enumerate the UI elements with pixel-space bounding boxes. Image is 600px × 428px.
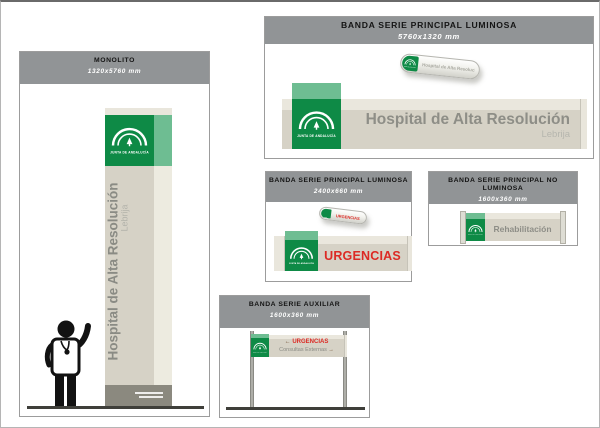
- junta-de-andalucia-logo-icon: JUNTA DE ANDALUCÍA: [403, 56, 418, 70]
- panel-title: MONOLITO: [20, 57, 209, 65]
- svg-text:JUNTA DE ANDALUCÍA: JUNTA DE ANDALUCÍA: [322, 220, 329, 222]
- monolith-side-face: [154, 166, 172, 385]
- junta-de-andalucia-logo-icon: JUNTA DE ANDALUCÍA: [467, 220, 484, 240]
- monolith-logo-block: JUNTA DE ANDALUCÍA: [105, 115, 154, 166]
- banda-sign: JUNTA DE ANDALUCÍA Hospital de Alta Reso…: [282, 99, 587, 149]
- left-arrow-icon: ←: [285, 339, 291, 345]
- panel-title: BANDA SERIE PRINCIPAL NO LUMINOSA: [429, 177, 577, 193]
- svg-text:JUNTA DE ANDALUCÍA: JUNTA DE ANDALUCÍA: [110, 149, 149, 154]
- right-arrow-icon: →: [328, 347, 334, 353]
- sign-right-endcap: [344, 335, 347, 357]
- logo-block: JUNTA DE ANDALUCÍA: [292, 99, 341, 149]
- banda-sign: JUNTA DE ANDALUCÍA Rehabilitación: [460, 211, 566, 244]
- sign-right-endcap: [580, 99, 587, 149]
- panel-dimensions: 1600x360 mm: [429, 196, 577, 203]
- sign-text-block: Hospital de Alta Resolución Lebrija: [342, 111, 570, 140]
- panel-header: BANDA SERIE AUXILIAR 1600x360 mm: [220, 296, 369, 328]
- sign-band-top-face: [318, 236, 407, 244]
- svg-text:JUNTA DE ANDALUCÍA: JUNTA DE ANDALUCÍA: [404, 65, 416, 69]
- svg-text:JUNTA DE ANDALUCÍA: JUNTA DE ANDALUCÍA: [289, 262, 314, 265]
- panel-dimensions: 1600x360 mm: [220, 312, 369, 319]
- banda-sign: JUNTA DE ANDALUCÍA URGENCIAS: [274, 231, 412, 271]
- junta-de-andalucia-logo-icon: JUNTA DE ANDALUCÍA: [252, 339, 268, 356]
- logo-block-top-face: [292, 83, 341, 99]
- svg-text:JUNTA DE ANDALUCÍA: JUNTA DE ANDALUCÍA: [468, 233, 483, 236]
- panel-header: BANDA SERIE PRINCIPAL NO LUMINOSA 1600x3…: [429, 172, 577, 204]
- sign-left-endcap: [274, 236, 285, 271]
- panel-dimensions: 5760x1320 mm: [265, 32, 593, 41]
- ground-line: [226, 407, 365, 410]
- monolith-base-band: [105, 385, 172, 406]
- monolith-sign: JUNTA DE ANDALUCÍA Hospital de Alta Reso…: [105, 108, 172, 406]
- junta-de-andalucia-logo-icon: JUNTA DE ANDALUCÍA: [295, 102, 338, 146]
- fine-print-line: [139, 396, 163, 398]
- person-pictogram-icon: [42, 318, 97, 406]
- fine-print-line: [135, 392, 163, 394]
- sign-3d-miniature: JUNTA DE ANDALUCÍA Hospital de Alta Reso…: [399, 53, 481, 80]
- city-name: Lebrija: [342, 129, 570, 140]
- mini-logo-block: JUNTA DE ANDALUCÍA: [401, 55, 418, 72]
- panel-banda-principal-grande: BANDA SERIE PRINCIPAL LUMINOSA 5760x1320…: [264, 16, 594, 159]
- urgencias-label: URGENCIAS: [318, 249, 407, 263]
- rehabilitacion-label: Rehabilitación: [485, 224, 560, 234]
- panel-header: BANDA SERIE PRINCIPAL LUMINOSA 2400x660 …: [266, 172, 411, 202]
- signage-spec-sheet: MONOLITO 1320x5760 mm JUNTA DE ANDALUCÍA…: [0, 0, 600, 428]
- direction-line-consultas: Consultas Externas →: [269, 347, 344, 353]
- hospital-name: Hospital de Alta Resolución: [342, 111, 570, 128]
- logo-block: JUNTA DE ANDALUCÍA: [285, 240, 318, 271]
- panel-dimensions: 2400x660 mm: [266, 188, 411, 195]
- panel-title: BANDA SERIE AUXILIAR: [220, 301, 369, 309]
- mini-sign-label: Hospital de Alta Resolución: [422, 62, 475, 73]
- monolith-city-name: Lebrija: [120, 171, 130, 381]
- junta-de-andalucia-logo-icon: JUNTA DE ANDALUCÍA: [108, 118, 151, 163]
- urgencias-label: URGENCIAS: [292, 339, 328, 345]
- ground-line: [27, 406, 204, 409]
- panel-monolito-header: MONOLITO 1320x5760 mm: [20, 52, 209, 84]
- banda-sign: JUNTA DE ANDALUCÍA ← URGENCIAS Consultas…: [249, 334, 347, 357]
- panel-title: BANDA SERIE PRINCIPAL LUMINOSA: [266, 177, 411, 185]
- junta-de-andalucia-logo-icon: JUNTA DE ANDALUCÍA: [322, 209, 331, 217]
- panel-banda-no-luminosa: BANDA SERIE PRINCIPAL NO LUMINOSA 1600x3…: [428, 171, 578, 246]
- monolith-top-cap: [105, 108, 172, 115]
- monolith-vertical-text: Hospital de Alta Resolución Lebrija: [106, 171, 155, 381]
- panel-banda-auxiliar: BANDA SERIE AUXILIAR 1600x360 mm JUNTA D…: [219, 295, 370, 418]
- sign-right-endcap: [560, 211, 566, 244]
- panel-banda-urgencias: BANDA SERIE PRINCIPAL LUMINOSA 2400x660 …: [265, 171, 412, 282]
- svg-text:JUNTA DE ANDALUCÍA: JUNTA DE ANDALUCÍA: [297, 133, 336, 138]
- panel-monolito: MONOLITO 1320x5760 mm JUNTA DE ANDALUCÍA…: [19, 51, 210, 417]
- logo-block: JUNTA DE ANDALUCÍA: [466, 219, 485, 241]
- panel-dimensions: 1320x5760 mm: [20, 68, 209, 75]
- panel-header: BANDA SERIE PRINCIPAL LUMINOSA 5760x1320…: [265, 17, 593, 44]
- mini-logo-block: JUNTA DE ANDALUCÍA: [321, 208, 332, 218]
- monolith-hospital-name: Hospital de Alta Resolución: [106, 171, 121, 381]
- logo-block: JUNTA DE ANDALUCÍA: [251, 338, 269, 357]
- junta-de-andalucia-logo-icon: JUNTA DE ANDALUCÍA: [287, 242, 316, 269]
- sign-right-endcap: [407, 236, 412, 271]
- logo-block-top-face: [285, 231, 318, 240]
- sign-3d-miniature: JUNTA DE ANDALUCÍA URGENCIAS: [318, 206, 367, 225]
- monolith-logo-block-side: [154, 115, 172, 166]
- direction-line-urgencias: ← URGENCIAS: [269, 339, 344, 345]
- panel-title: BANDA SERIE PRINCIPAL LUMINOSA: [265, 21, 593, 29]
- consultas-label: Consultas Externas: [279, 347, 327, 353]
- svg-text:JUNTA DE ANDALUCÍA: JUNTA DE ANDALUCÍA: [253, 350, 267, 353]
- mini-sign-label: URGENCIAS: [336, 213, 363, 221]
